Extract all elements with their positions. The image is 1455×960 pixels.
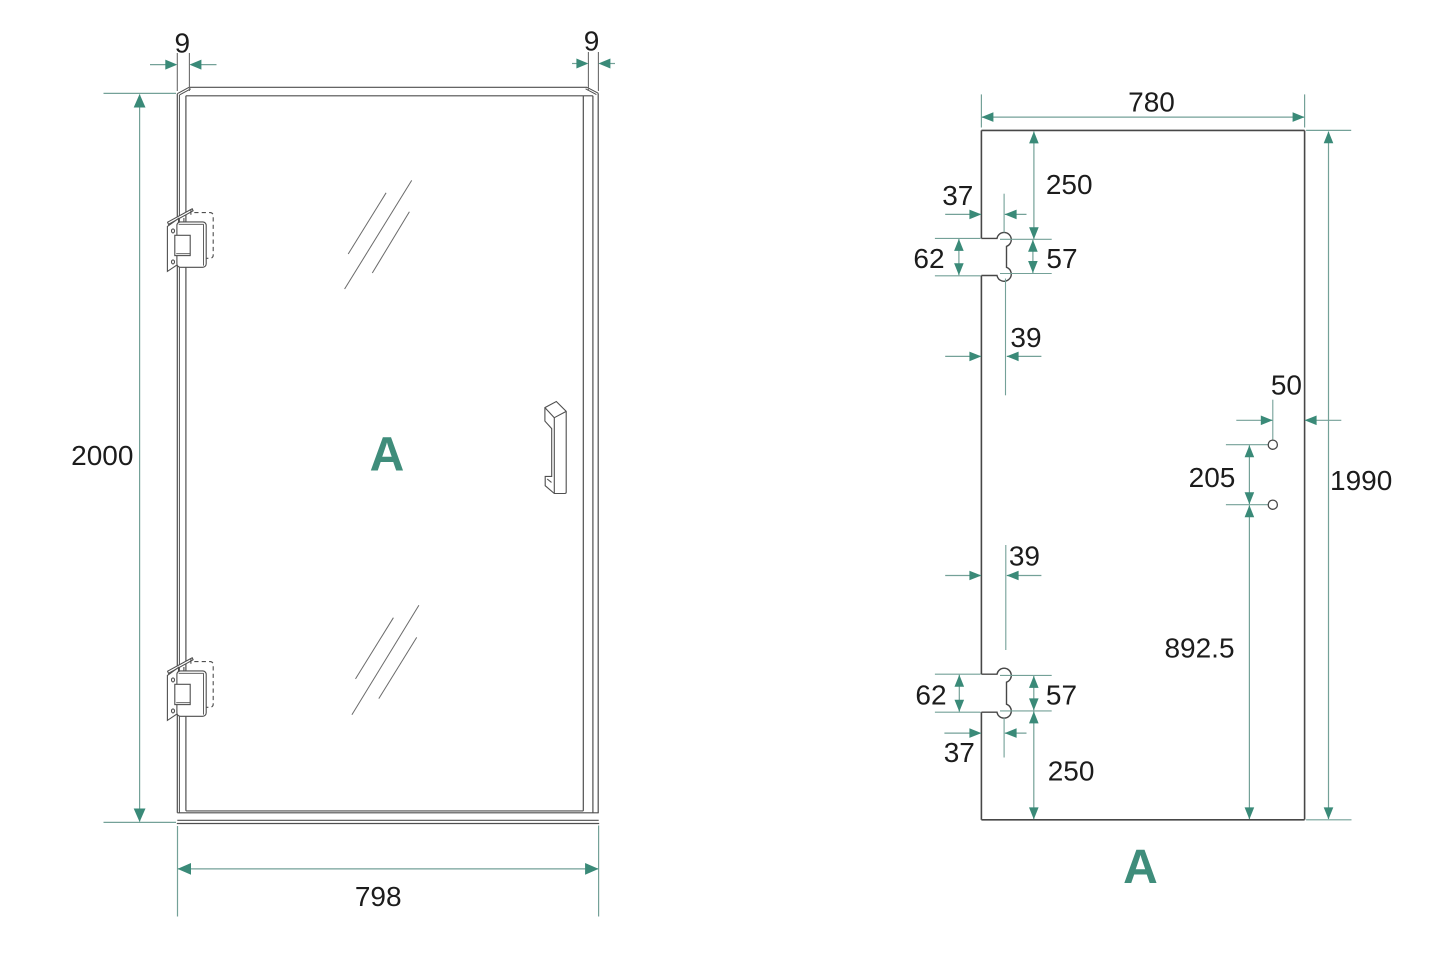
svg-text:1990: 1990: [1330, 465, 1392, 496]
svg-text:9: 9: [175, 27, 191, 58]
svg-text:A: A: [370, 429, 405, 482]
svg-text:205: 205: [1189, 462, 1236, 493]
svg-text:250: 250: [1048, 755, 1095, 786]
svg-text:780: 780: [1128, 86, 1175, 117]
svg-text:39: 39: [1010, 322, 1041, 353]
svg-text:39: 39: [1009, 541, 1040, 572]
svg-text:57: 57: [1046, 679, 1077, 710]
svg-text:250: 250: [1046, 169, 1093, 200]
svg-text:57: 57: [1046, 243, 1077, 274]
svg-text:62: 62: [915, 679, 946, 710]
svg-text:A: A: [1123, 841, 1158, 894]
svg-text:798: 798: [355, 881, 402, 912]
svg-text:2000: 2000: [71, 440, 133, 471]
svg-text:9: 9: [584, 26, 600, 57]
svg-text:62: 62: [913, 243, 944, 274]
svg-text:37: 37: [944, 737, 975, 768]
svg-text:892.5: 892.5: [1164, 632, 1234, 663]
svg-text:50: 50: [1271, 369, 1302, 400]
svg-text:37: 37: [942, 180, 973, 211]
